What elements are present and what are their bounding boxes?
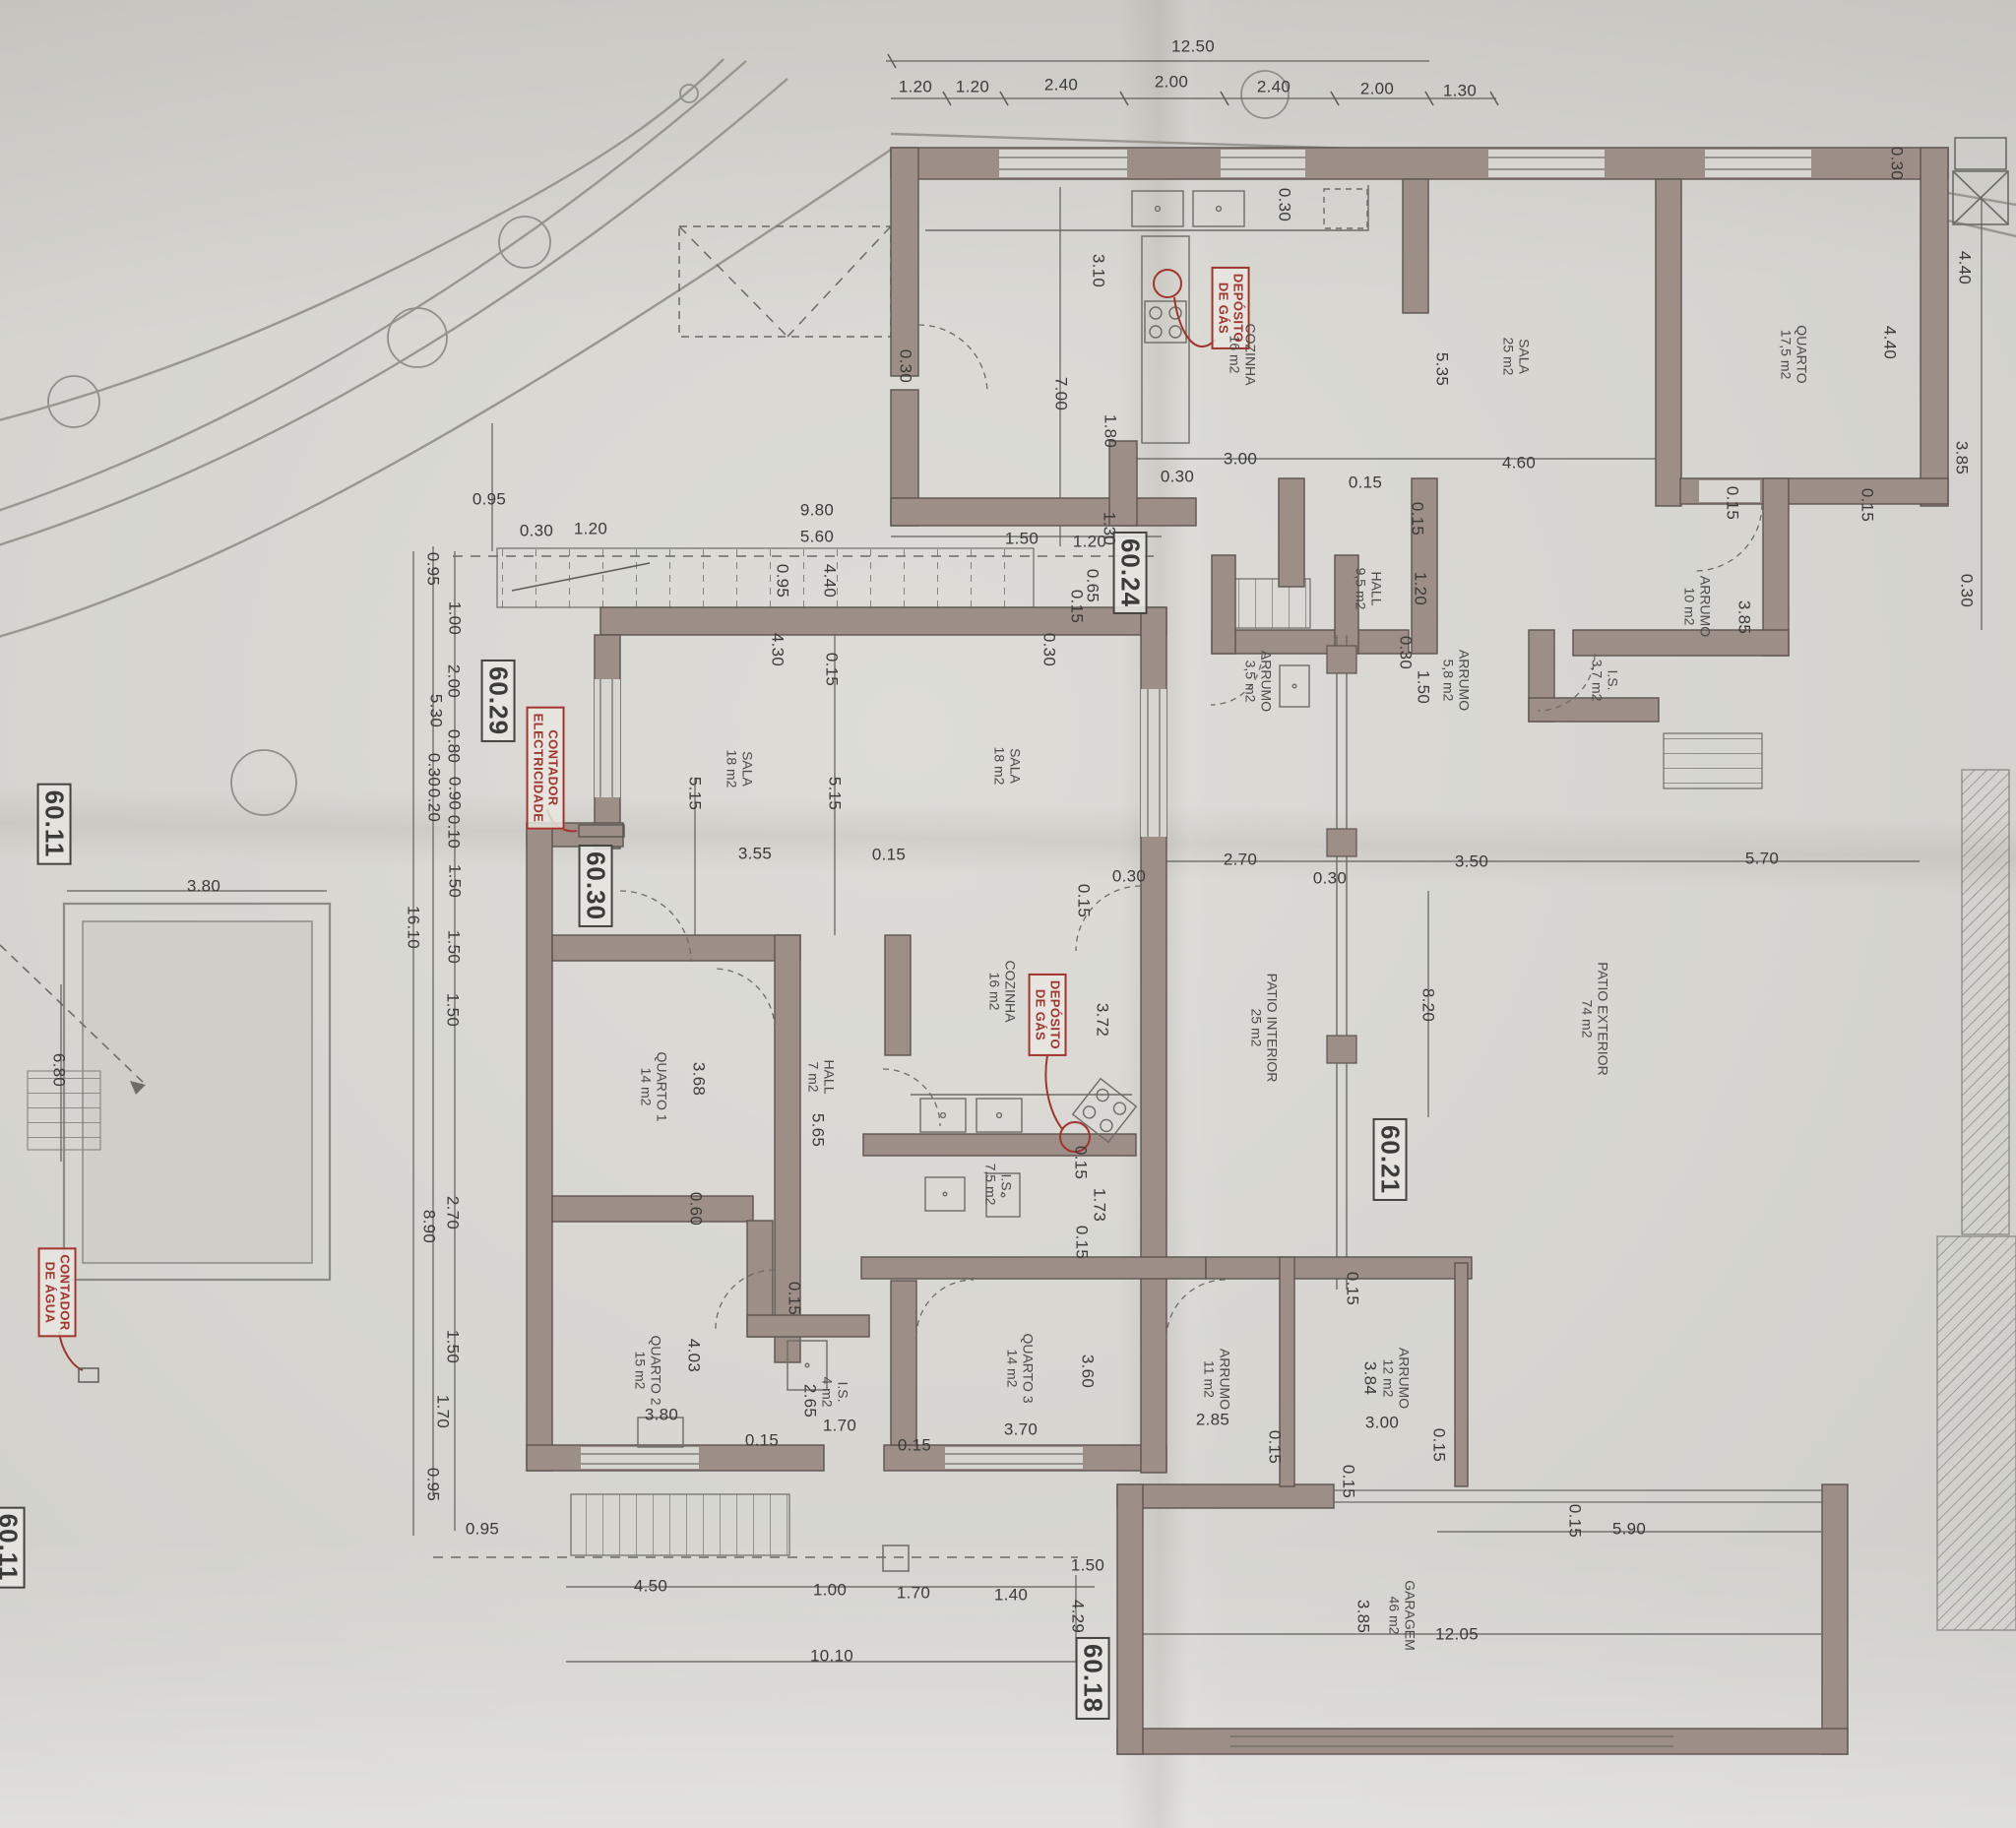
- room-sala-upper: SALA 25 m2: [1500, 338, 1531, 376]
- dim: 1.50: [1414, 670, 1432, 704]
- dim: 0.30: [1275, 188, 1293, 221]
- dim: 1.00: [445, 601, 464, 635]
- dim: 3.68: [689, 1062, 708, 1096]
- dim: 0.15: [1339, 1465, 1357, 1498]
- dim: 5.15: [685, 777, 704, 810]
- pool: [0, 904, 330, 1280]
- level-60-21: 60.21: [1372, 1118, 1407, 1201]
- room-patio-interior: PATIO INTERIOR 25 m2: [1248, 974, 1279, 1083]
- dim: 1.70: [823, 1416, 856, 1434]
- dim: 0.15: [1067, 590, 1086, 623]
- dim: 5.30: [426, 694, 445, 727]
- room-arrumo-5-8: ARRUMO 5,8 m2: [1440, 650, 1471, 711]
- dim: 5.15: [825, 777, 844, 810]
- dim: 3.84: [1360, 1361, 1379, 1395]
- dim: 5.35: [1432, 352, 1451, 386]
- note-electricity-meter: CONTADOR ELECTRICIDADE: [526, 707, 564, 830]
- dim: 1.20: [956, 77, 989, 95]
- dim: 0.60: [686, 1192, 705, 1226]
- dim: 8.20: [1418, 988, 1437, 1022]
- room-is-3-7: I.S. 3,7 m2: [1589, 660, 1619, 702]
- room-quarto-3: QUARTO 3 14 m2: [1004, 1333, 1035, 1403]
- dim: 2.70: [443, 1196, 462, 1229]
- dim: 4.30: [768, 633, 787, 666]
- dim: 0.15: [1074, 884, 1093, 917]
- dim: 0.90: [445, 777, 464, 810]
- dim: 0.15: [1408, 502, 1426, 536]
- dim: 3.80: [187, 876, 220, 895]
- floor-plan-photo: 60.2460.2960.3060.1160.2160.1860.11DEPÓS…: [0, 0, 2016, 1828]
- room-arrumo-12: ARRUMO 12 m2: [1380, 1348, 1411, 1409]
- dim: 0.15: [1429, 1428, 1448, 1462]
- dim: 0.15: [1343, 1272, 1361, 1305]
- level-60-11-edge: 60.11: [0, 1507, 26, 1589]
- dim: 10.10: [810, 1646, 853, 1665]
- room-is-7-5: I.S. 7,5 m2: [982, 1164, 1013, 1206]
- dim: 0.30: [1396, 636, 1415, 669]
- dim: 7.00: [1051, 377, 1070, 410]
- room-cozinha-upper: COZINHA 16 m2: [1227, 324, 1257, 386]
- dim: 0.30: [896, 349, 914, 383]
- dim: 6.80: [49, 1053, 68, 1087]
- room-cozinha-lower: COZINHA 16 m2: [986, 961, 1017, 1023]
- dim: 2.70: [1224, 850, 1257, 868]
- room-is-4: I.S. 4 m2: [819, 1376, 850, 1407]
- dim: 0.30: [424, 753, 443, 787]
- dim: 3.85: [1952, 441, 1971, 474]
- dim: 1.70: [433, 1395, 452, 1428]
- dim: 1.30: [1100, 512, 1118, 545]
- dim: 3.55: [738, 844, 772, 862]
- room-sala-18-a: SALA 18 m2: [724, 750, 754, 788]
- boundary-hatch: [1937, 770, 2016, 1630]
- dim: 1.73: [1090, 1188, 1108, 1222]
- dim: 0.95: [773, 564, 791, 598]
- walls-lower-building: [527, 607, 1206, 1473]
- dim: 0.10: [444, 815, 463, 849]
- dim: 0.80: [444, 729, 463, 763]
- dim: 0.15: [1071, 1146, 1090, 1179]
- dim: 4.03: [684, 1339, 703, 1372]
- level-60-11-pool: 60.11: [36, 784, 71, 865]
- dim: 5.70: [1745, 849, 1779, 867]
- walls-garage: [1117, 1257, 1848, 1754]
- room-garagem: GARAGEM 46 m2: [1386, 1580, 1417, 1651]
- dim: 3.00: [1224, 449, 1257, 468]
- dim: 1.40: [994, 1585, 1028, 1604]
- room-sala-18-b: SALA 18 m2: [991, 747, 1022, 786]
- dim: 4.60: [1502, 453, 1536, 472]
- dim: 4.40: [1955, 251, 1974, 284]
- room-arrumo-10: ARRUMO 10 m2: [1681, 576, 1712, 637]
- dim: 16.10: [404, 906, 422, 949]
- dim: 4.40: [1880, 326, 1899, 359]
- dim: 0.95: [423, 552, 442, 586]
- room-arrumo-11: ARRUMO 11 m2: [1201, 1349, 1231, 1410]
- dim: 2.40: [1044, 75, 1078, 94]
- dim: 3.72: [1093, 1003, 1111, 1037]
- dim: 2.00: [1155, 72, 1188, 91]
- note-gas-tank-lower: DEPÓSITO DE GÁS: [1028, 974, 1066, 1056]
- level-60-18: 60.18: [1075, 1637, 1109, 1720]
- dim: 2.65: [800, 1384, 819, 1418]
- dim: 0.15: [1072, 1226, 1091, 1259]
- dim: 0.30: [1112, 866, 1146, 885]
- dim: 0.15: [785, 1282, 803, 1315]
- dim: 4.29: [1068, 1600, 1087, 1633]
- room-quarto-2: QUARTO 2 15 m2: [632, 1335, 662, 1405]
- dim: 0.15: [745, 1430, 779, 1449]
- dim: 4.40: [820, 564, 839, 598]
- dim: 5.60: [800, 527, 834, 545]
- dim: 3.10: [1089, 254, 1107, 287]
- patio-divider: [1327, 635, 1356, 1290]
- dim: 0.15: [1265, 1430, 1284, 1464]
- kitchen-upper: [925, 185, 1368, 443]
- dim: 0.95: [466, 1519, 499, 1538]
- dim: 1.50: [443, 1330, 462, 1363]
- level-60-30: 60.30: [578, 845, 612, 927]
- utility-box-icon: [1953, 138, 2008, 224]
- room-quarto-1: QUARTO 1 14 m2: [638, 1051, 668, 1121]
- dim: 0.95: [423, 1468, 442, 1501]
- garage-front: [1230, 1490, 1822, 1746]
- dim: 0.30: [1039, 633, 1058, 666]
- dim: 3.60: [1078, 1355, 1097, 1388]
- room-quarto-upper: QUARTO 17,5 m2: [1778, 325, 1808, 383]
- dim: 0.15: [822, 653, 841, 686]
- dim: 3.85: [1354, 1600, 1372, 1633]
- dim: 0.15: [872, 845, 906, 863]
- room-hall-upper: HALL 9,5 m2: [1353, 568, 1383, 610]
- dim: 3.85: [1734, 600, 1753, 634]
- dim: 0.15: [1723, 486, 1741, 520]
- room-patio-exterior: PATIO EXTERIOR 74 m2: [1579, 962, 1609, 1075]
- dim: 1.30: [1443, 81, 1477, 99]
- dim: 8.90: [419, 1210, 438, 1243]
- dim: 12.05: [1435, 1624, 1479, 1643]
- dim: 1.50: [445, 864, 464, 898]
- dim: 1.50: [1071, 1555, 1104, 1574]
- plan-linework: [0, 0, 2016, 1828]
- dim: 0.30: [1957, 574, 1976, 607]
- dim: 2.00: [1360, 79, 1394, 97]
- dim: 0.15: [1565, 1504, 1584, 1538]
- dim: 0.15: [1349, 473, 1382, 491]
- dim: 2.85: [1196, 1410, 1229, 1428]
- dim-top-total: 12.50: [1171, 36, 1215, 55]
- dim: 9.80: [800, 500, 834, 519]
- dim: 0.30: [1161, 467, 1194, 485]
- dim: 1.20: [1411, 572, 1429, 605]
- dim: 1.50: [443, 993, 462, 1027]
- dim: 0.30: [1887, 147, 1906, 180]
- note-water-meter: CONTADOR DE ÁGUA: [37, 1247, 76, 1337]
- dim: 0.15: [1858, 488, 1876, 522]
- dim: 2.40: [1257, 77, 1291, 95]
- dim: 0.30: [520, 521, 553, 539]
- dim: 3.70: [1004, 1419, 1038, 1438]
- room-arrumo-3-5: ARRUMO 3,5 m2: [1242, 651, 1273, 712]
- dim: 0.20: [424, 788, 443, 822]
- dim: 0.15: [898, 1435, 931, 1454]
- dim: 4.50: [634, 1576, 667, 1595]
- dim: 0.95: [472, 489, 506, 508]
- level-60-29: 60.29: [480, 660, 515, 742]
- dim: 3.50: [1455, 851, 1488, 870]
- dim: 5.65: [808, 1113, 827, 1147]
- dim: 0.30: [1313, 868, 1347, 887]
- room-hall-lower: HALL 7 m2: [805, 1059, 836, 1094]
- dim: 2.00: [444, 664, 463, 698]
- dim: 1.70: [897, 1583, 930, 1602]
- dim: 3.80: [645, 1405, 678, 1423]
- dim: 3.00: [1365, 1413, 1399, 1431]
- dim: 1.80: [1101, 414, 1119, 448]
- dim: 1.20: [899, 77, 932, 95]
- dim: 1.50: [1005, 529, 1039, 547]
- dim: 1.50: [444, 930, 463, 964]
- dim: 1.20: [574, 519, 607, 537]
- dim: 5.90: [1612, 1519, 1646, 1538]
- dim: 1.00: [813, 1580, 847, 1599]
